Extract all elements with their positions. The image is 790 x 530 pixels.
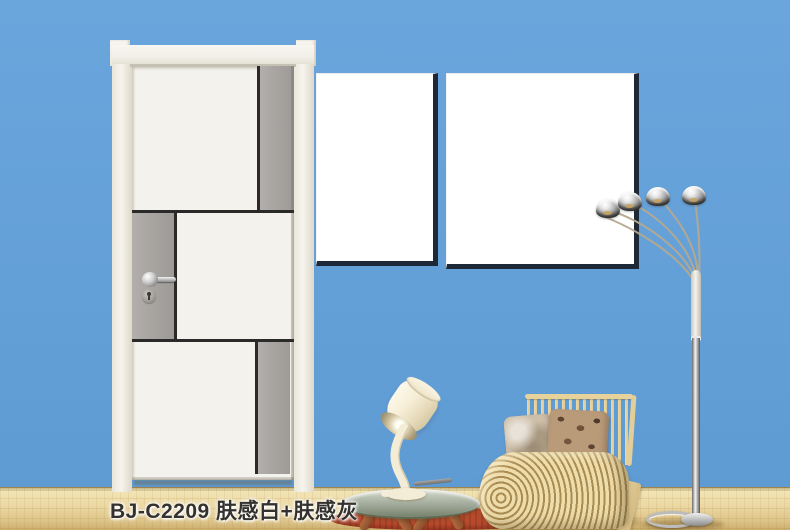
door-groove-vertical-middle	[174, 213, 177, 339]
door-edge-shade	[291, 66, 294, 480]
floor-lamp-base-disc	[681, 513, 713, 526]
door-frame-jamb-right	[294, 64, 314, 492]
door-groove-horizontal-2	[132, 339, 294, 342]
lamp-head-icon	[646, 187, 670, 206]
bucket-lamp-puddle	[386, 488, 426, 500]
door-groove-horizontal-1	[132, 210, 294, 213]
door-groove-vertical-top	[257, 66, 260, 210]
door-frame-lintel	[112, 45, 314, 66]
chair-slat-seat-roll	[479, 452, 629, 529]
door-grey-panel-top	[260, 66, 294, 210]
door-floor-shadow	[134, 480, 292, 485]
floor-lamp-pole	[692, 338, 700, 516]
lamp-head-icon	[596, 199, 620, 218]
showroom-scene: BJ-C2209 肤感白+肤感灰	[0, 0, 790, 530]
door-groove-vertical-bottom	[255, 342, 258, 474]
door-grey-panel-bottom	[258, 342, 290, 474]
door-keyhole	[142, 289, 156, 303]
door-slab	[132, 66, 294, 480]
product-label: BJ-C2209 肤感白+肤感灰	[110, 495, 358, 525]
lamp-head-icon	[618, 192, 642, 211]
wall-canvas-left	[316, 73, 438, 266]
lamp-head-icon	[682, 186, 706, 205]
door-handle-knob	[142, 272, 158, 287]
floor-lamp-upper-pole	[691, 270, 701, 338]
door-frame-jamb-left	[112, 64, 132, 492]
